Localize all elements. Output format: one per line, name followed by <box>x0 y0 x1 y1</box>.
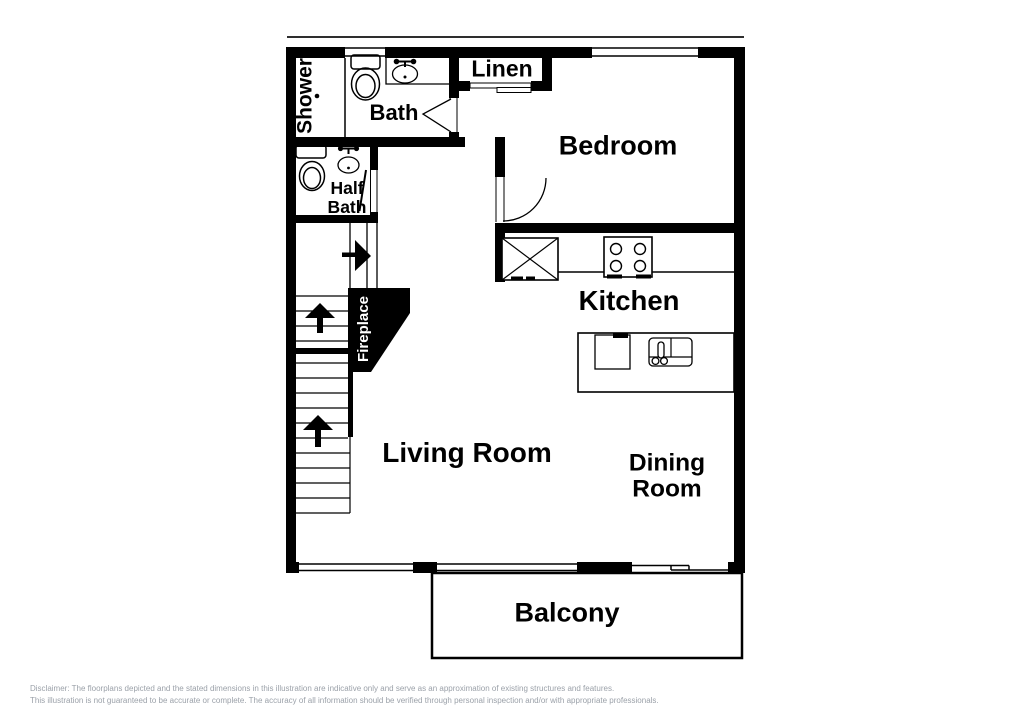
room-label-living-room: Living Room <box>382 438 552 468</box>
linen-bifold-doors <box>470 83 531 93</box>
sliding-glass-door <box>632 566 728 571</box>
room-label-balcony: Balcony <box>514 598 619 627</box>
stove-icon <box>604 237 652 279</box>
room-label-dining-room: Dining Room <box>629 451 705 504</box>
halfbath-sink-icon <box>338 146 359 173</box>
floorplan-drawing <box>0 0 1024 720</box>
bath-sink-icon <box>386 58 449 84</box>
disclaimer-line-1: Disclaimer: The floorplans depicted and … <box>30 684 614 694</box>
kitchen-island <box>578 333 734 392</box>
dining-room-window <box>437 564 577 571</box>
arrow-up-icon <box>305 303 335 333</box>
room-label-shower: Shower <box>295 58 318 134</box>
room-label-bath: Bath <box>370 101 419 125</box>
bath-toilet-icon <box>351 55 380 100</box>
bedroom-door <box>496 177 546 222</box>
halfbath-toilet-icon <box>296 145 326 191</box>
refrigerator-icon <box>502 238 558 281</box>
bedroom-door-arc <box>503 178 546 221</box>
bath-door <box>423 98 457 132</box>
room-label-linen: Linen <box>471 57 532 82</box>
room-label-fireplace: Fireplace <box>356 296 372 362</box>
disclaimer-line-2: This illustration is not guaranteed to b… <box>30 696 659 706</box>
arrow-up-icon <box>303 415 333 447</box>
room-label-half-bath: Half Bath <box>328 179 367 217</box>
floorplan-page: Shower Bath Linen Half Bath Bedroom Kitc… <box>0 0 1024 720</box>
living-room-window <box>299 564 413 571</box>
top-window <box>592 48 698 56</box>
room-label-kitchen: Kitchen <box>579 286 680 316</box>
island-sink-icon <box>649 338 692 366</box>
dishwasher-icon <box>595 333 630 369</box>
room-label-bedroom: Bedroom <box>559 131 678 160</box>
stairs-lower-flight <box>296 363 350 513</box>
